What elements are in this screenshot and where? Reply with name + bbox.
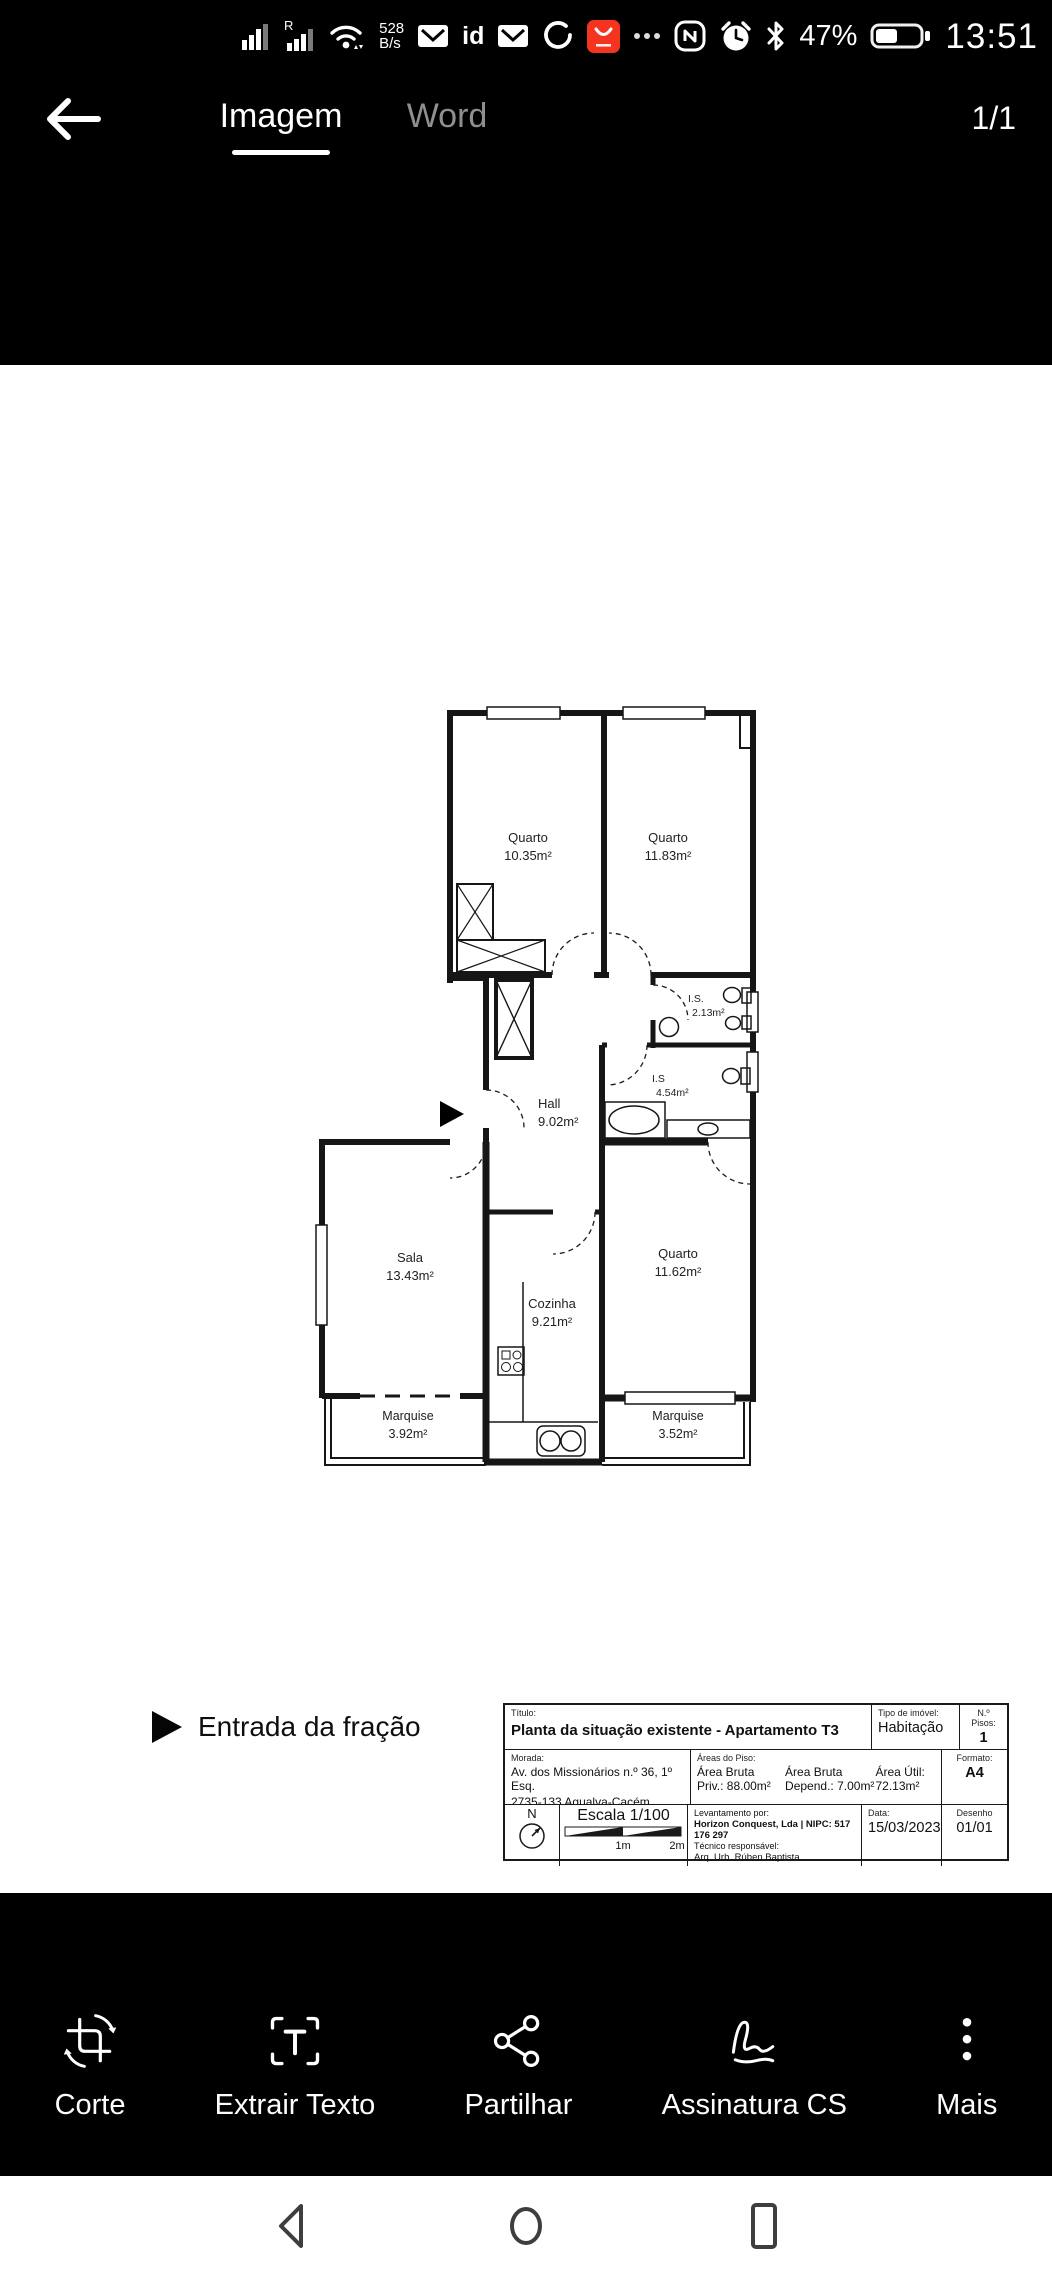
drawing-number-label: Desenho (948, 1808, 1001, 1818)
signature-icon (724, 2011, 784, 2071)
share-icon (488, 2011, 548, 2071)
share-button[interactable]: Partilhar (464, 2011, 572, 2122)
property-type: Habitação (878, 1720, 953, 1736)
floorplan-walls (322, 710, 753, 1462)
sync-icon (542, 20, 574, 52)
room-area: 11.62m² (655, 1264, 702, 1279)
room-area: 3.92m² (389, 1427, 428, 1441)
floors-value: 1 (966, 1730, 1001, 1746)
extract-text-label: Extrair Texto (215, 2089, 376, 2122)
overflow-dots-icon (633, 31, 661, 41)
bottom-toolbar: Corte Extrair Texto Partilhar (0, 1893, 1052, 2176)
north-compass-icon (516, 1821, 548, 1851)
mail-icon (497, 23, 529, 49)
crop-button[interactable]: Corte (55, 2011, 126, 2122)
format-value: A4 (948, 1765, 1001, 1781)
address-label: Morada: (511, 1753, 684, 1763)
title-label: Título: (511, 1708, 865, 1718)
room-area: 10.35m² (504, 848, 552, 863)
small-room-labels: I.S. 2.13m² I.S 4.54m² Hall 9.02m² (538, 993, 725, 1129)
nav-back-icon[interactable] (270, 2200, 306, 2252)
page-indicator: 1/1 (972, 100, 1016, 137)
floorplan-image[interactable]: Quarto 10.35m² Quarto 11.83m² Sala 13.43… (300, 690, 770, 1480)
room-label: Marquise (652, 1409, 703, 1423)
north-letter: N (506, 1806, 558, 1821)
back-arrow-icon[interactable] (42, 96, 106, 142)
scale-bar: 1m 2m (563, 1825, 685, 1851)
signal-strength-sim2-icon: R (283, 19, 315, 53)
room-label: Marquise (382, 1409, 433, 1423)
property-type-label: Tipo de imóvel: (878, 1708, 953, 1718)
date-value: 15/03/2023 (868, 1820, 935, 1836)
scale-tick-1m: 1m (615, 1840, 630, 1851)
address-line1: Av. dos Missionários n.º 36, 1º Esq. (511, 1765, 684, 1793)
sim2-badge: R (284, 19, 293, 33)
tab-word[interactable]: Word (387, 97, 507, 136)
network-speed-value: 528 (379, 21, 404, 36)
gross-private-area: Área Bruta Priv.: 88.00m² (697, 1765, 785, 1793)
room-area: 11.83m² (645, 848, 692, 863)
room-area: 2.13m² (692, 1007, 725, 1019)
room-area: 4.54m² (656, 1087, 689, 1099)
battery-icon (870, 20, 932, 52)
phone-screen: R 528 B/s id (0, 0, 1052, 2276)
scale-tick-2m: 2m (669, 1840, 684, 1851)
clock-time: 13:51 (945, 19, 1038, 54)
room-labels: Quarto 10.35m² Quarto 11.83m² Sala 13.43… (382, 830, 703, 1441)
more-dots-icon (937, 2011, 997, 2071)
shaft-and-wardrobes (457, 884, 545, 1058)
drawing-title: Planta da situação existente - Apartamen… (511, 1722, 865, 1739)
more-label: Mais (936, 2089, 997, 2122)
date-label: Data: (868, 1808, 935, 1818)
room-area: 9.21m² (532, 1314, 573, 1329)
id-app-icon: id (462, 24, 484, 49)
nav-recents-icon[interactable] (746, 2200, 782, 2252)
survey-company: Horizon Conquest, Lda | NIPC: 517 176 29… (694, 1819, 855, 1841)
floors-label: N.º Pisos: (966, 1708, 1001, 1728)
signature-button[interactable]: Assinatura CS (662, 2011, 847, 2122)
crop-label: Corte (55, 2089, 126, 2122)
wifi-icon (328, 20, 366, 52)
survey-tech: Arq. Urb. Rúben Baptista (694, 1852, 855, 1863)
battery-percent: 47% (799, 22, 857, 51)
tab-imagem[interactable]: Imagem (196, 97, 366, 136)
more-button[interactable]: Mais (936, 2011, 997, 2122)
shopping-app-icon (587, 20, 620, 53)
room-label: Cozinha (528, 1296, 576, 1311)
network-speed-unit: B/s (379, 36, 404, 51)
nfc-icon (674, 20, 706, 52)
net-area: Área Útil: 72.13m² (875, 1765, 935, 1793)
mail-icon (417, 23, 449, 49)
title-block: Título: Planta da situação existente - A… (503, 1703, 1009, 1861)
room-label: Quarto (658, 1246, 698, 1261)
nav-home-icon[interactable] (506, 2200, 546, 2252)
room-label: Quarto (508, 830, 548, 845)
active-tab-underline (232, 150, 330, 155)
drawing-number: 01/01 (948, 1820, 1001, 1836)
areas-label: Áreas do Piso: (697, 1753, 935, 1763)
extract-text-icon (265, 2011, 325, 2071)
bluetooth-icon (766, 20, 786, 52)
room-area: 13.43m² (386, 1268, 434, 1283)
entrance-legend: Entrada da fração (152, 1711, 421, 1743)
room-label: Sala (397, 1250, 424, 1265)
alarm-icon (719, 19, 753, 53)
address-line2: 2735-133 Agualva-Cacém, Sintra (511, 1795, 684, 1804)
signature-label: Assinatura CS (662, 2089, 847, 2122)
format-label: Formato: (948, 1753, 1001, 1763)
survey-tech-label: Técnico responsável: (694, 1841, 855, 1852)
survey-label: Levantamento por: (694, 1808, 855, 1819)
status-bar: R 528 B/s id (0, 0, 1052, 62)
document-page[interactable]: Quarto 10.35m² Quarto 11.83m² Sala 13.43… (0, 365, 1052, 1893)
scale-text: Escala 1/100 (562, 1807, 685, 1825)
room-label: Quarto (648, 830, 688, 845)
entrance-arrow (440, 1101, 464, 1127)
room-area: 9.02m² (538, 1114, 579, 1129)
signal-strength-icon (240, 20, 270, 52)
room-label: I.S. (688, 993, 704, 1005)
crop-rotate-icon (60, 2011, 120, 2071)
entrance-legend-label: Entrada da fração (198, 1711, 421, 1743)
gross-dependent-area: Área Bruta Depend.: 7.00m² (785, 1765, 875, 1793)
share-label: Partilhar (464, 2089, 572, 2122)
room-area: 3.52m² (659, 1427, 698, 1441)
room-label: I.S (652, 1073, 665, 1085)
room-label: Hall (538, 1096, 561, 1111)
extract-text-button[interactable]: Extrair Texto (215, 2011, 376, 2122)
network-speed: 528 B/s (379, 21, 404, 51)
entrance-triangle-icon (152, 1711, 182, 1743)
android-nav-bar (0, 2176, 1052, 2276)
